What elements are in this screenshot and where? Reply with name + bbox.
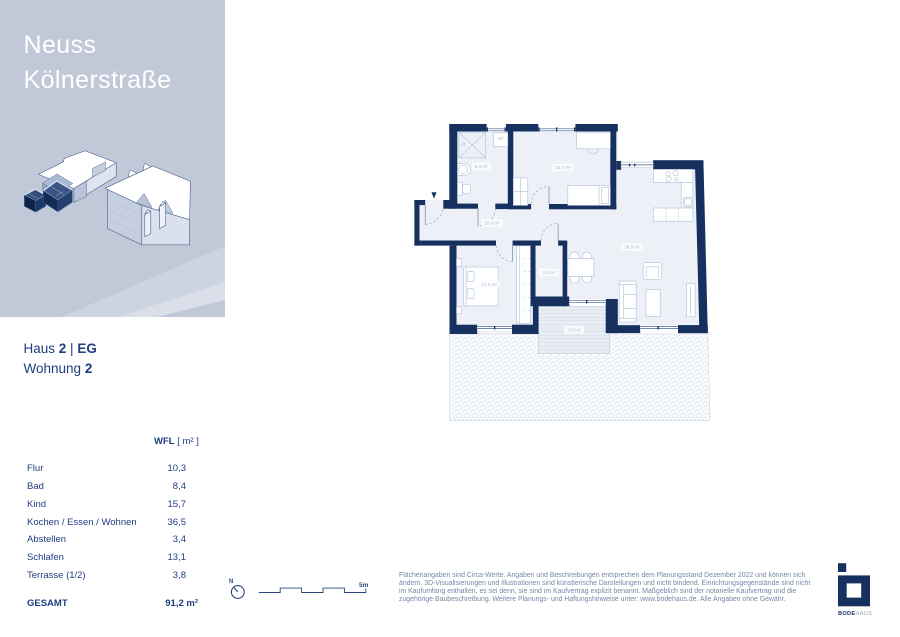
svg-text:15,7 m²: 15,7 m² (555, 165, 571, 170)
svg-text:5m: 5m (359, 582, 369, 589)
svg-text:N: N (229, 579, 233, 585)
svg-text:3,8 m²: 3,8 m² (567, 328, 580, 333)
svg-text:13,1 m²: 13,1 m² (481, 282, 497, 287)
svg-text:36,5 m²: 36,5 m² (624, 245, 640, 250)
svg-text:WT: WT (498, 136, 505, 141)
svg-text:10,3 m²: 10,3 m² (484, 221, 500, 226)
svg-text:BODEHAUS: BODEHAUS (838, 611, 872, 617)
svg-text:3,4 m²: 3,4 m² (542, 270, 555, 275)
svg-text:8,4 m²: 8,4 m² (474, 164, 487, 169)
